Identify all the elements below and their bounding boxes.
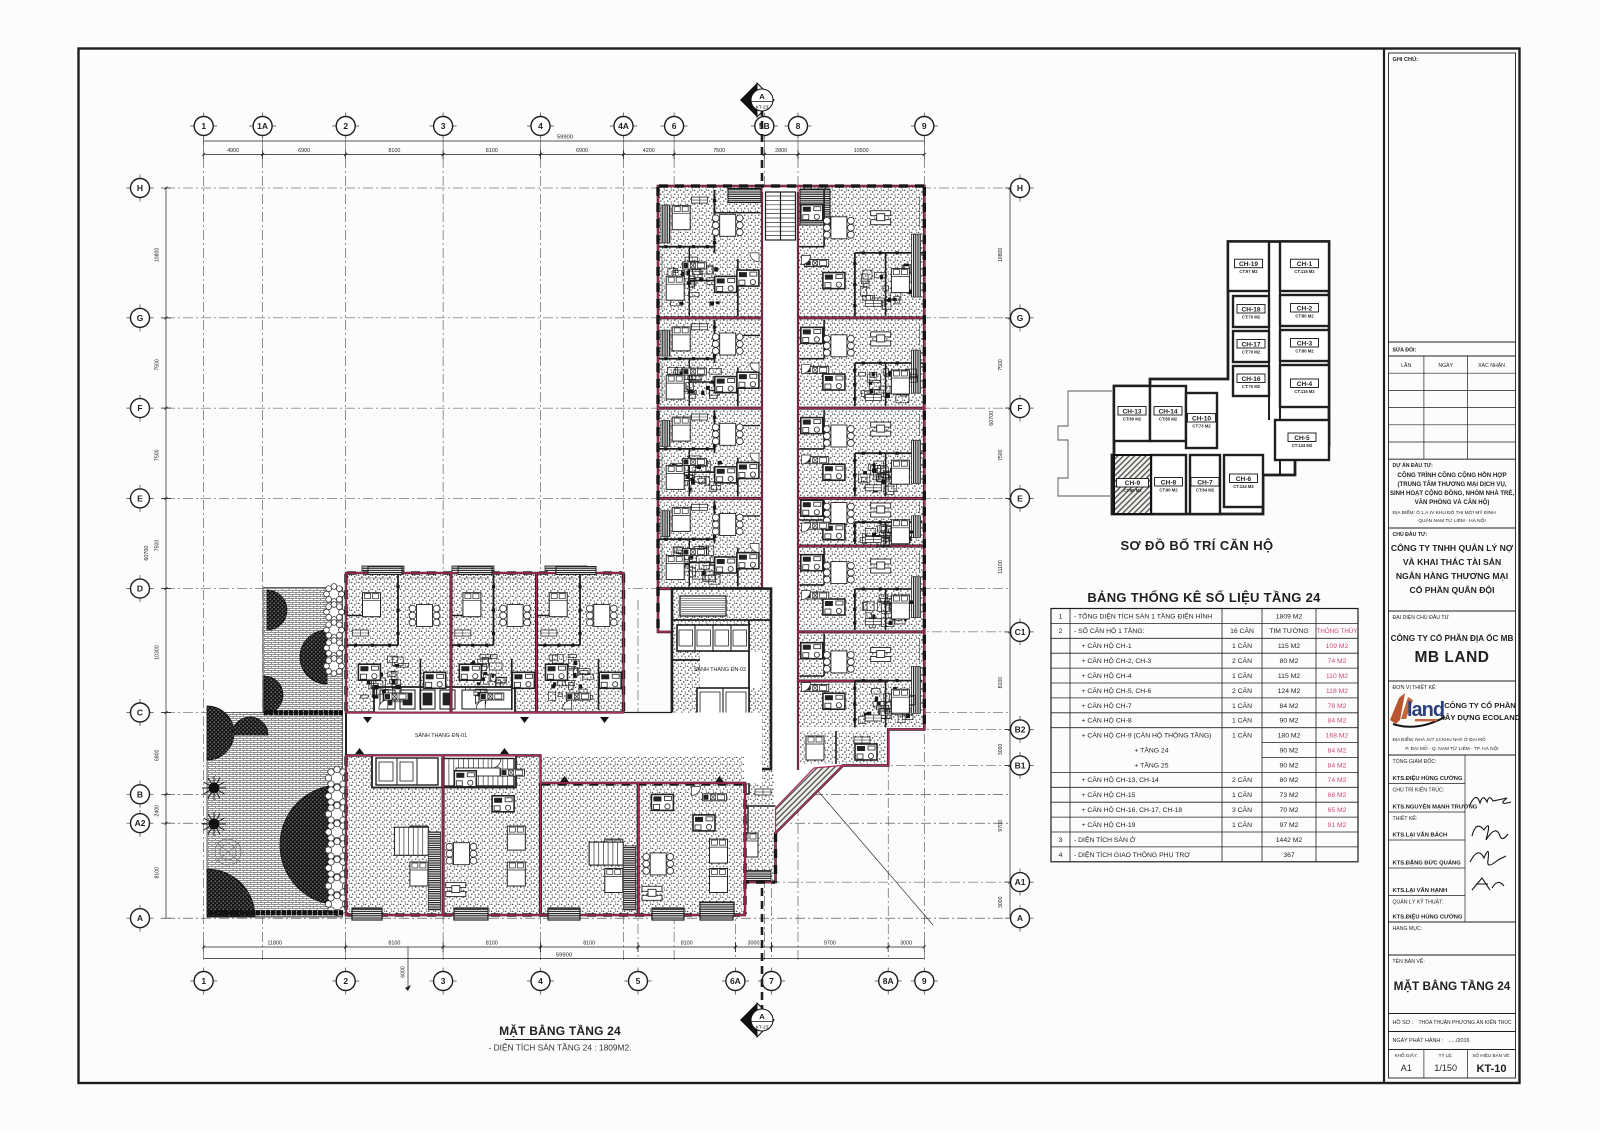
svg-text:2800: 2800 xyxy=(775,148,787,154)
svg-text:70 M2: 70 M2 xyxy=(1280,807,1299,814)
svg-text:- DIỆN TÍCH SÀN TẦNG 24 : 1809: - DIỆN TÍCH SÀN TẦNG 24 : 1809M2. xyxy=(488,1043,631,1053)
svg-text:9: 9 xyxy=(922,976,927,986)
svg-text:ĐỊA ĐIỂM: NHÀ 4V7.14 KHU NHÀ: ĐỊA ĐIỂM: NHÀ 4V7.14 KHU NHÀ Ở ĐẠI MỖ xyxy=(1393,736,1486,742)
svg-text:TIM TƯỜNG: TIM TƯỜNG xyxy=(1269,626,1308,635)
svg-text:CT:70 M2: CT:70 M2 xyxy=(1242,350,1261,355)
svg-text:SINH HOẠT CỘNG ĐỒNG, NHÓM NHÀ: SINH HOẠT CỘNG ĐỒNG, NHÓM NHÀ TRẺ, xyxy=(1390,489,1514,497)
svg-text:CH-5: CH-5 xyxy=(1294,435,1310,442)
svg-text:VĂN PHÒNG VÀ CĂN HỘ): VĂN PHÒNG VÀ CĂN HỘ) xyxy=(1415,498,1490,506)
svg-text:+ CĂN HỘ CH-8: + CĂN HỘ CH-8 xyxy=(1074,716,1132,725)
svg-text:60700: 60700 xyxy=(989,411,995,426)
svg-text:SƠ ĐỒ BỐ TRÍ CĂN HỘ: SƠ ĐỒ BỐ TRÍ CĂN HỘ xyxy=(1120,538,1273,553)
svg-text:3000: 3000 xyxy=(998,744,1004,756)
svg-text:CT:124 M2: CT:124 M2 xyxy=(1292,443,1313,448)
svg-text:110 M2: 110 M2 xyxy=(1326,673,1348,680)
svg-text:7500: 7500 xyxy=(155,449,161,461)
svg-text:CH-3: CH-3 xyxy=(1297,341,1313,348)
svg-text:5: 5 xyxy=(636,976,641,986)
svg-text:CH-4: CH-4 xyxy=(1297,381,1313,388)
svg-text:CH-9: CH-9 xyxy=(1125,480,1141,487)
svg-text:C1: C1 xyxy=(1015,627,1026,637)
svg-text:HẠNG MỤC:: HẠNG MỤC: xyxy=(1393,926,1423,932)
svg-text:6900: 6900 xyxy=(576,148,588,154)
svg-text:CH-7: CH-7 xyxy=(1197,480,1213,487)
svg-text:7500: 7500 xyxy=(998,449,1004,461)
svg-text:CỔ PHẦN QUÂN ĐỘI: CỔ PHẦN QUÂN ĐỘI xyxy=(1410,584,1495,595)
svg-text:MẶT BẰNG TẦNG 24: MẶT BẰNG TẦNG 24 xyxy=(499,1023,621,1038)
svg-text:90 M2: 90 M2 xyxy=(1280,718,1299,725)
svg-text:+ CĂN HỘ CH-2, CH-3: + CĂN HỘ CH-2, CH-3 xyxy=(1074,656,1151,665)
svg-text:80 M2: 80 M2 xyxy=(1280,658,1299,665)
svg-text:1: 1 xyxy=(201,976,206,986)
svg-text:3: 3 xyxy=(1059,837,1063,844)
svg-text:180 M2: 180 M2 xyxy=(1278,733,1301,740)
svg-text:4A: 4A xyxy=(618,121,629,131)
svg-text:11800: 11800 xyxy=(267,941,282,947)
svg-text:CT:84 M2: CT:84 M2 xyxy=(1196,488,1215,493)
svg-text:KTS.ĐẶNG ĐỨC QUẢNG: KTS.ĐẶNG ĐỨC QUẢNG xyxy=(1393,860,1462,867)
svg-text:CT:80 M2: CT:80 M2 xyxy=(1295,349,1314,354)
svg-text:CT:80 M2: CT:80 M2 xyxy=(1159,417,1178,422)
svg-text:4200: 4200 xyxy=(643,148,655,154)
svg-text:1/150: 1/150 xyxy=(1434,1063,1457,1073)
svg-text:CÔNG TY CỔ PHẦN ĐỊA ỐC MB: CÔNG TY CỔ PHẦN ĐỊA ỐC MB xyxy=(1391,632,1514,643)
svg-text:1809 M2: 1809 M2 xyxy=(1276,613,1303,620)
svg-text:2: 2 xyxy=(343,121,348,131)
svg-text:80 M2: 80 M2 xyxy=(1280,777,1299,784)
svg-text:2 CĂN: 2 CĂN xyxy=(1232,775,1252,784)
svg-text:84 M2: 84 M2 xyxy=(1328,762,1347,769)
svg-text:2: 2 xyxy=(1059,628,1063,635)
svg-text:+ CĂN HỘ CH-13, CH-14: + CĂN HỘ CH-13, CH-14 xyxy=(1074,775,1159,784)
svg-text:3 CĂN: 3 CĂN xyxy=(1232,805,1252,814)
svg-text:3000: 3000 xyxy=(748,941,760,947)
svg-text:118 M2: 118 M2 xyxy=(1326,688,1348,695)
svg-text:+ CĂN HỘ CH-15: + CĂN HỘ CH-15 xyxy=(1074,790,1136,799)
svg-text:H: H xyxy=(137,183,143,193)
svg-text:109 M2: 109 M2 xyxy=(1326,643,1349,650)
svg-text:68 M2: 68 M2 xyxy=(1328,792,1347,799)
svg-text:8100: 8100 xyxy=(583,941,595,947)
svg-text:CÔNG TY CỔ PHẦN: CÔNG TY CỔ PHẦN xyxy=(1444,700,1516,710)
svg-text:A: A xyxy=(1017,913,1023,923)
svg-text:3: 3 xyxy=(441,976,446,986)
svg-text:CH-6: CH-6 xyxy=(1236,476,1252,483)
svg-text:60700: 60700 xyxy=(144,546,150,561)
svg-text:CH-14: CH-14 xyxy=(1158,409,1177,416)
svg-text:1: 1 xyxy=(201,121,206,131)
svg-text:8: 8 xyxy=(796,121,801,131)
svg-text:CH-8: CH-8 xyxy=(1161,480,1177,487)
svg-text:74 M2: 74 M2 xyxy=(1328,658,1347,665)
svg-text:KT-10: KT-10 xyxy=(1477,1063,1507,1075)
svg-text:7500: 7500 xyxy=(155,359,161,371)
svg-text:84 M2: 84 M2 xyxy=(1328,748,1347,755)
svg-text:SỐ HIỆU BẢN VẼ:: SỐ HIỆU BẢN VẼ: xyxy=(1472,1051,1510,1058)
svg-text:1 CĂN: 1 CĂN xyxy=(1232,731,1252,740)
svg-text:4: 4 xyxy=(538,976,543,986)
svg-text:7: 7 xyxy=(769,976,774,986)
svg-text:SẢNH THANG ĐN-02: SẢNH THANG ĐN-02 xyxy=(694,666,746,673)
svg-text:TÊN BẢN VẼ:: TÊN BẢN VẼ: xyxy=(1393,957,1425,965)
svg-text:1A: 1A xyxy=(257,121,268,131)
svg-text:90 M2: 90 M2 xyxy=(1280,762,1299,769)
svg-text:4: 4 xyxy=(538,121,543,131)
svg-text:115 M2: 115 M2 xyxy=(1278,673,1300,680)
svg-text:LẦN: LẦN xyxy=(1401,362,1411,369)
svg-text:CH-18: CH-18 xyxy=(1241,307,1260,314)
svg-text:1 CĂN: 1 CĂN xyxy=(1232,716,1252,725)
svg-text:+ CĂN HỘ CH-1: + CĂN HỘ CH-1 xyxy=(1074,641,1132,650)
svg-text:6800: 6800 xyxy=(155,750,161,762)
svg-text:...../2016: ...../2016 xyxy=(1449,1038,1470,1044)
svg-text:CHỦ ĐẦU TƯ:: CHỦ ĐẦU TƯ: xyxy=(1393,531,1428,538)
svg-text:(TRUNG TÂM THƯƠNG MẠI DỊCH VỤ,: (TRUNG TÂM THƯƠNG MẠI DỊCH VỤ, xyxy=(1397,481,1506,488)
svg-text:THÔNG THỦY: THÔNG THỦY xyxy=(1317,628,1358,635)
svg-text:3000: 3000 xyxy=(900,941,912,947)
svg-text:CT:70 M2: CT:70 M2 xyxy=(1242,384,1261,389)
svg-text:E: E xyxy=(137,493,143,503)
svg-text:KTS.ĐIỆU HÙNG CƯỜNG: KTS.ĐIỆU HÙNG CƯỜNG xyxy=(1393,913,1463,921)
svg-text:ĐƠN VỊ THIẾT KẾ:: ĐƠN VỊ THIẾT KẾ: xyxy=(1393,684,1437,691)
svg-text:8100: 8100 xyxy=(681,941,693,947)
svg-text:8100: 8100 xyxy=(388,148,400,154)
svg-text:7500: 7500 xyxy=(998,359,1004,371)
svg-text:1 CĂN: 1 CĂN xyxy=(1232,701,1252,710)
svg-text:KTS.LẠI VĂN BÁCH: KTS.LẠI VĂN BÁCH xyxy=(1393,832,1448,839)
svg-text:A2: A2 xyxy=(135,818,146,828)
svg-text:A: A xyxy=(137,913,143,923)
svg-text:6A: 6A xyxy=(730,976,741,986)
svg-text:CHỦ TRÌ KIẾN TRÚC:: CHỦ TRÌ KIẾN TRÚC: xyxy=(1393,787,1445,794)
svg-text:2400: 2400 xyxy=(155,805,161,817)
svg-text:CT:80 M2: CT:80 M2 xyxy=(1123,417,1142,422)
svg-text:MẶT BẰNG TẦNG 24: MẶT BẰNG TẦNG 24 xyxy=(1394,979,1511,993)
svg-text:E: E xyxy=(1017,493,1023,503)
svg-text:+ CĂN HỘ CH-5, CH-6: + CĂN HỘ CH-5, CH-6 xyxy=(1074,686,1151,695)
svg-text:C: C xyxy=(137,708,143,718)
svg-text:KTS.LẠI VĂN HẠNH: KTS.LẠI VĂN HẠNH xyxy=(1393,887,1448,894)
svg-text:CH-13: CH-13 xyxy=(1122,409,1141,416)
svg-text:- DIỆN TÍCH GIAO THÔNG PHỤ TRỢ: - DIỆN TÍCH GIAO THÔNG PHỤ TRỢ xyxy=(1074,850,1190,859)
svg-text:168 M2: 168 M2 xyxy=(1326,733,1349,740)
svg-text:4: 4 xyxy=(1059,852,1063,859)
svg-text:B2: B2 xyxy=(1015,724,1026,734)
svg-text:CH-1: CH-1 xyxy=(1297,261,1313,268)
svg-text:5B: 5B xyxy=(759,121,770,131)
svg-text:8A: 8A xyxy=(883,976,894,986)
svg-text:1442 M2: 1442 M2 xyxy=(1276,837,1303,844)
svg-text:+ CĂN HỘ CH-19: + CĂN HỘ CH-19 xyxy=(1074,820,1136,829)
svg-text:65 M2: 65 M2 xyxy=(1328,807,1347,814)
svg-text:3: 3 xyxy=(441,121,446,131)
svg-text:16 CĂN: 16 CĂN xyxy=(1230,626,1254,635)
svg-text:NGÂN HÀNG THƯƠNG MẠI: NGÂN HÀNG THƯƠNG MẠI xyxy=(1396,570,1508,581)
svg-text:+ CĂN HỘ CH-4: + CĂN HỘ CH-4 xyxy=(1074,671,1132,680)
svg-text:CT:70 M2: CT:70 M2 xyxy=(1242,315,1261,320)
svg-text:F: F xyxy=(1017,403,1022,413)
svg-text:1: 1 xyxy=(1059,613,1063,620)
svg-text:H: H xyxy=(1017,183,1023,193)
svg-text:CÔNG TY TNHH QUẢN LÝ NỢ: CÔNG TY TNHH QUẢN LÝ NỢ xyxy=(1391,542,1514,553)
svg-text:6: 6 xyxy=(672,121,677,131)
svg-text:1 CĂN: 1 CĂN xyxy=(1232,671,1252,680)
svg-text:TỶ LỆ:: TỶ LỆ: xyxy=(1439,1051,1453,1058)
svg-text:84 M2: 84 M2 xyxy=(1328,718,1347,725)
svg-text:91 M2: 91 M2 xyxy=(1328,822,1347,829)
svg-text:7500: 7500 xyxy=(155,540,161,552)
svg-text:8100: 8100 xyxy=(486,941,498,947)
svg-text:CH-19: CH-19 xyxy=(1239,261,1258,268)
svg-text:CH-17: CH-17 xyxy=(1241,342,1260,349)
svg-text:XÁC NHẬN: XÁC NHẬN xyxy=(1478,362,1505,369)
svg-text:G: G xyxy=(137,313,144,323)
svg-text:74 M2: 74 M2 xyxy=(1328,777,1347,784)
svg-text:124 M2: 124 M2 xyxy=(1278,688,1301,695)
svg-text:9700: 9700 xyxy=(824,941,836,947)
svg-text:11100: 11100 xyxy=(998,560,1004,574)
svg-text:2 CĂN: 2 CĂN xyxy=(1232,686,1252,695)
svg-text:115 M2: 115 M2 xyxy=(1278,643,1300,650)
svg-text:SẢNH THANG ĐN-01: SẢNH THANG ĐN-01 xyxy=(415,732,467,739)
svg-text:6900: 6900 xyxy=(298,148,310,154)
svg-text:A: A xyxy=(759,92,765,101)
svg-text:9700: 9700 xyxy=(998,820,1004,832)
svg-text:CT:97 M2: CT:97 M2 xyxy=(1239,269,1258,274)
svg-text:D: D xyxy=(137,584,143,594)
svg-text:CT:90 M2: CT:90 M2 xyxy=(1123,488,1142,493)
svg-text:97 M2: 97 M2 xyxy=(1280,822,1299,829)
svg-text:land: land xyxy=(1407,699,1444,721)
svg-text:10800: 10800 xyxy=(155,248,161,263)
svg-text:CT:90 M2: CT:90 M2 xyxy=(1159,488,1178,493)
svg-text:B: B xyxy=(137,789,143,799)
svg-text:10800: 10800 xyxy=(998,248,1004,263)
svg-text:A1: A1 xyxy=(1015,877,1026,887)
svg-text:NGÀY: NGÀY xyxy=(1438,362,1453,369)
svg-text:2 CĂN: 2 CĂN xyxy=(1232,656,1252,665)
svg-text:CT:124 M2: CT:124 M2 xyxy=(1233,484,1254,489)
svg-text:KT-23: KT-23 xyxy=(756,1025,769,1031)
svg-text:1 CĂN: 1 CĂN xyxy=(1232,820,1252,829)
svg-text:VÀ KHAI THÁC TÀI SẢN: VÀ KHAI THÁC TÀI SẢN xyxy=(1403,556,1501,567)
svg-text:59900: 59900 xyxy=(557,135,573,141)
svg-text:6000: 6000 xyxy=(401,966,407,978)
svg-text:NGÀY PHÁT HÀNH :: NGÀY PHÁT HÀNH : xyxy=(1393,1037,1444,1044)
svg-text:4900: 4900 xyxy=(227,148,239,154)
svg-text:10300: 10300 xyxy=(155,645,161,660)
svg-text:1 CĂN: 1 CĂN xyxy=(1232,641,1252,650)
svg-text:CH-10: CH-10 xyxy=(1192,416,1211,423)
svg-text:1 CĂN: 1 CĂN xyxy=(1232,790,1252,799)
svg-text:90 M2: 90 M2 xyxy=(1280,748,1299,755)
svg-text:ĐẠI DIỆN CHỦ ĐẦU TƯ: ĐẠI DIỆN CHỦ ĐẦU TƯ xyxy=(1393,613,1450,621)
svg-text:CÔNG TRÌNH CÔNG CỘNG HỖN HỢP: CÔNG TRÌNH CÔNG CỘNG HỖN HỢP xyxy=(1397,471,1506,479)
svg-text:73 M2: 73 M2 xyxy=(1280,792,1299,799)
svg-text:QUẢN LÝ KỸ THUẬT:: QUẢN LÝ KỸ THUẬT: xyxy=(1393,899,1444,906)
svg-text:8100: 8100 xyxy=(388,941,400,947)
svg-text:8100: 8100 xyxy=(155,867,161,879)
svg-text:+ CĂN HỘ CH-16, CH-17, CH-18: + CĂN HỘ CH-16, CH-17, CH-18 xyxy=(1074,805,1182,814)
svg-text:CH-2: CH-2 xyxy=(1297,306,1313,313)
svg-text:GHI CHÚ:: GHI CHÚ: xyxy=(1393,56,1419,63)
svg-text:8100: 8100 xyxy=(486,148,498,154)
svg-text:CT:73 M2: CT:73 M2 xyxy=(1192,424,1211,429)
svg-text:DỰ ÁN ĐẦU TƯ:: DỰ ÁN ĐẦU TƯ: xyxy=(1393,462,1434,469)
svg-text:KHỔ GIẤY:: KHỔ GIẤY: xyxy=(1395,1052,1418,1058)
svg-text:59900: 59900 xyxy=(556,953,572,959)
svg-text:XÂY DỰNG ECOLAND: XÂY DỰNG ECOLAND xyxy=(1440,713,1521,722)
svg-text:THIẾT KẾ:: THIẾT KẾ: xyxy=(1393,815,1418,822)
svg-text:10500: 10500 xyxy=(854,148,869,154)
svg-text:G: G xyxy=(1017,313,1024,323)
svg-text:SỬA ĐỔI:: SỬA ĐỔI: xyxy=(1393,347,1417,354)
svg-text:84 M2: 84 M2 xyxy=(1280,703,1299,710)
svg-text:3000: 3000 xyxy=(998,896,1004,908)
svg-text:CT:115 M2: CT:115 M2 xyxy=(1294,269,1315,274)
svg-text:7500: 7500 xyxy=(713,148,725,154)
svg-text:CT:115 M2: CT:115 M2 xyxy=(1294,389,1315,394)
svg-text:MB LAND: MB LAND xyxy=(1415,649,1490,666)
svg-text:2: 2 xyxy=(343,976,348,986)
svg-text:8100: 8100 xyxy=(998,677,1004,689)
svg-text:A1: A1 xyxy=(1401,1063,1412,1073)
svg-text:THỎA THUẬN PHƯƠNG ÁN KIẾN TRÚC: THỎA THUẬN PHƯƠNG ÁN KIẾN TRÚC xyxy=(1419,1019,1512,1026)
svg-text:TỔNG GIÁM ĐỐC:: TỔNG GIÁM ĐỐC: xyxy=(1393,758,1437,765)
svg-text:9: 9 xyxy=(922,121,927,131)
svg-text:B1: B1 xyxy=(1015,760,1026,770)
svg-text:CH-16: CH-16 xyxy=(1241,376,1260,383)
svg-text:367: 367 xyxy=(1283,852,1295,859)
svg-text:HỒ SƠ :: HỒ SƠ : xyxy=(1393,1019,1414,1026)
svg-text:A: A xyxy=(759,1012,765,1021)
svg-text:+ CĂN HỘ CH-7: + CĂN HỘ CH-7 xyxy=(1074,701,1132,710)
svg-text:KT-23: KT-23 xyxy=(756,105,769,111)
svg-text:ĐỊA ĐIỂM: Ô 1.A.IV KHU ĐÔ THỊ: ĐỊA ĐIỂM: Ô 1.A.IV KHU ĐÔ THỊ MỚI MỸ ĐÌN… xyxy=(1393,509,1497,516)
svg-text:KTS.ĐIỆU HÙNG CƯỜNG: KTS.ĐIỆU HÙNG CƯỜNG xyxy=(1393,774,1463,782)
svg-text:CT:80 M2: CT:80 M2 xyxy=(1295,314,1314,319)
svg-text:- DIỆN TÍCH SÀN Ở: - DIỆN TÍCH SÀN Ở xyxy=(1074,835,1136,844)
svg-text:F: F xyxy=(137,403,142,413)
svg-text:78 M2: 78 M2 xyxy=(1328,703,1347,710)
svg-text:BẢNG THỐNG KÊ SỐ LIỆU TẦNG 24: BẢNG THỐNG KÊ SỐ LIỆU TẦNG 24 xyxy=(1087,590,1321,605)
